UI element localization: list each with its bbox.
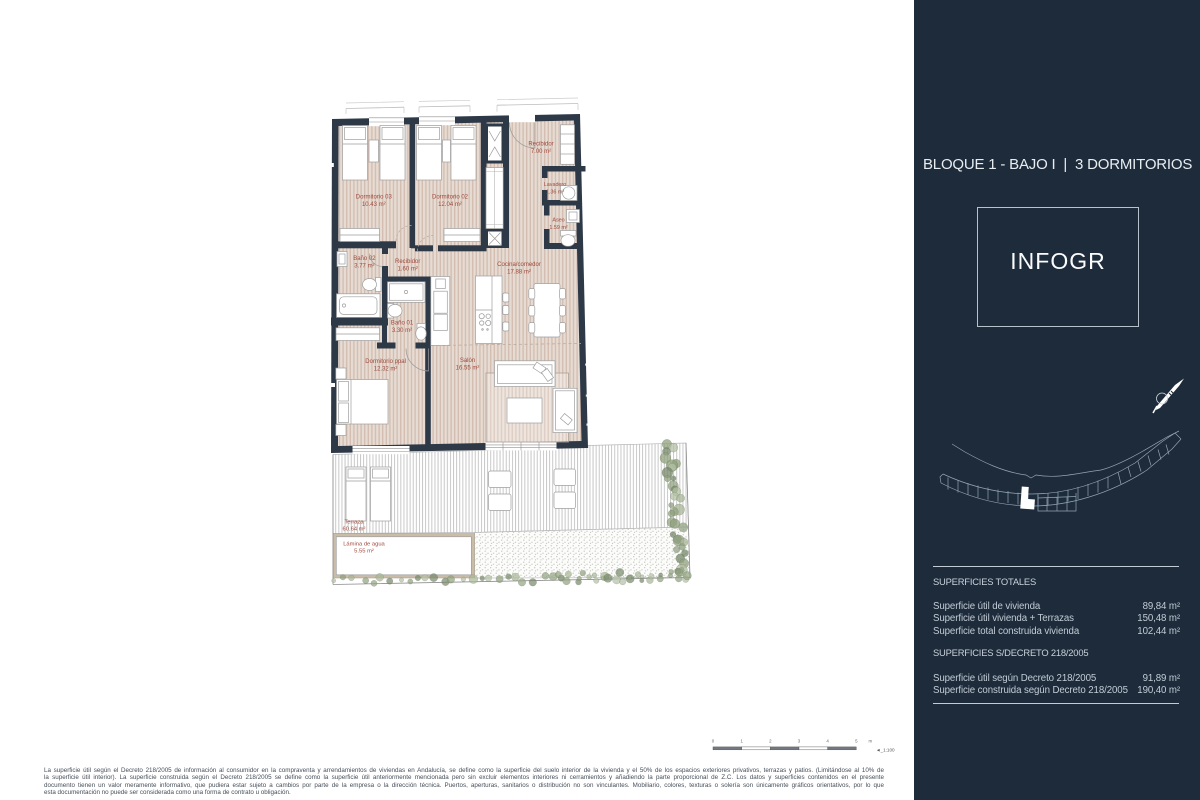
svg-text:1.36 m²: 1.36 m² (546, 190, 564, 196)
svg-text:12.04 m²: 12.04 m² (438, 202, 462, 208)
svg-text:17.88 m²: 17.88 m² (507, 269, 531, 275)
svg-text:3.77 m²: 3.77 m² (354, 264, 374, 270)
svg-text:3.30 m²: 3.30 m² (392, 328, 412, 334)
svg-text:Baño 01: Baño 01 (391, 320, 414, 326)
svg-text:Aseo: Aseo (552, 218, 564, 224)
svg-text:1: 1 (740, 739, 743, 744)
svg-text:10.43 m²: 10.43 m² (362, 202, 386, 208)
svg-text:Cocina/comedor: Cocina/comedor (497, 262, 541, 268)
svg-text:Recibidor: Recibidor (528, 142, 553, 148)
svg-text:Lavadero: Lavadero (544, 182, 566, 188)
svg-text:Lámina de agua: Lámina de agua (343, 542, 385, 548)
svg-text:7.00 m²: 7.00 m² (531, 149, 551, 155)
svg-text:16.55 m²: 16.55 m² (456, 366, 480, 372)
svg-text:1.60 m²: 1.60 m² (398, 267, 418, 273)
svg-text:m: m (868, 739, 872, 744)
svg-text:Dormitorio ppal: Dormitorio ppal (365, 359, 406, 365)
svg-text:Recibidor: Recibidor (395, 259, 420, 265)
svg-text:Terraza: Terraza (344, 520, 364, 526)
svg-text:Baño 02: Baño 02 (353, 256, 376, 262)
svg-text:0: 0 (712, 739, 715, 744)
svg-text:◄_1:100: ◄_1:100 (876, 748, 895, 753)
svg-text:3: 3 (798, 739, 801, 744)
svg-text:12.32 m²: 12.32 m² (374, 367, 398, 373)
svg-text:5.55 m²: 5.55 m² (354, 549, 374, 555)
svg-text:60.64 m²: 60.64 m² (343, 527, 366, 533)
svg-text:Dormitorio 03: Dormitorio 03 (356, 195, 393, 201)
svg-text:Salón: Salón (460, 358, 475, 364)
svg-text:Dormitorio 02: Dormitorio 02 (432, 195, 469, 201)
svg-text:2: 2 (769, 739, 772, 744)
svg-text:5: 5 (855, 739, 858, 744)
svg-text:4: 4 (826, 739, 829, 744)
svg-text:1.59 m²: 1.59 m² (549, 225, 567, 231)
